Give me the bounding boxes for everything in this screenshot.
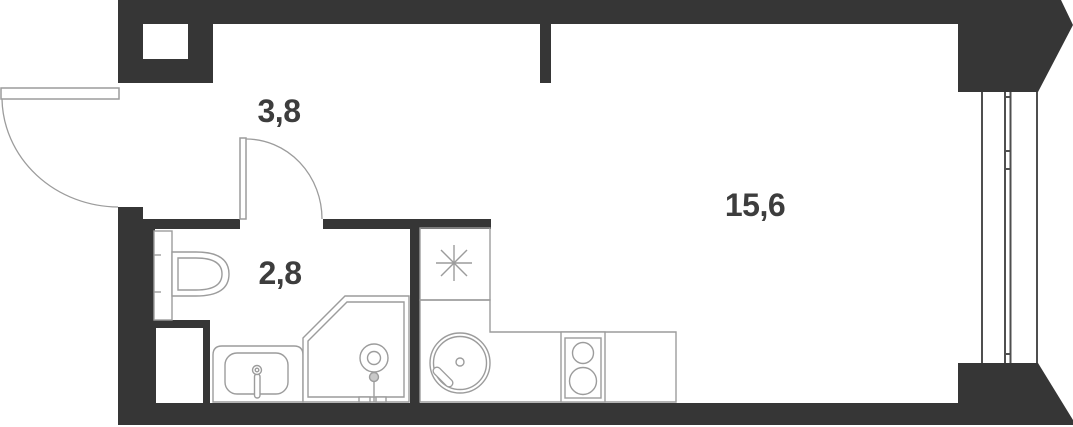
window (982, 92, 1037, 363)
hallway-living-wall-stub (540, 24, 551, 83)
top-left-wall-block (118, 0, 213, 83)
refrigerator-symbol (436, 245, 472, 281)
hallway-area-label: 3,8 (258, 93, 301, 129)
bathroom-door-swing-arc (246, 139, 322, 219)
shower-head-outer (360, 344, 388, 372)
cooktop (561, 332, 605, 402)
kitchen-sink (430, 333, 490, 393)
bottom-right-wall-block (958, 363, 1073, 425)
shower-tray-outer (303, 296, 409, 402)
bathroom-area-label: 2,8 (259, 255, 302, 291)
toilet-tank (154, 231, 172, 320)
bathroom-door-leaf (240, 138, 246, 219)
entry-door (1, 88, 119, 207)
wall-niche (118, 320, 210, 405)
shower-drain-left (359, 397, 370, 402)
washbasin (213, 346, 303, 402)
washbasin-faucet-base (253, 366, 262, 375)
shower-valve (370, 373, 379, 382)
floor-plan: 3,8 2,8 15,6 (0, 0, 1073, 427)
top-wall (213, 0, 1073, 92)
entry-door-swing-arc (2, 99, 118, 207)
shower-drain-right (376, 397, 386, 402)
bathroom-wall-left-segment (118, 219, 240, 229)
bottom-wall (118, 403, 958, 425)
toilet (154, 231, 229, 320)
washbasin-faucet-stem (255, 374, 261, 398)
entry-door-leaf (1, 88, 119, 99)
left-wall-below-door (118, 207, 143, 221)
kitchen-sink-drain (456, 358, 464, 366)
shower (303, 296, 409, 402)
bathroom-kitchen-wall (410, 229, 420, 403)
bathroom-door (240, 138, 322, 219)
living-room-area-label: 15,6 (725, 187, 785, 223)
